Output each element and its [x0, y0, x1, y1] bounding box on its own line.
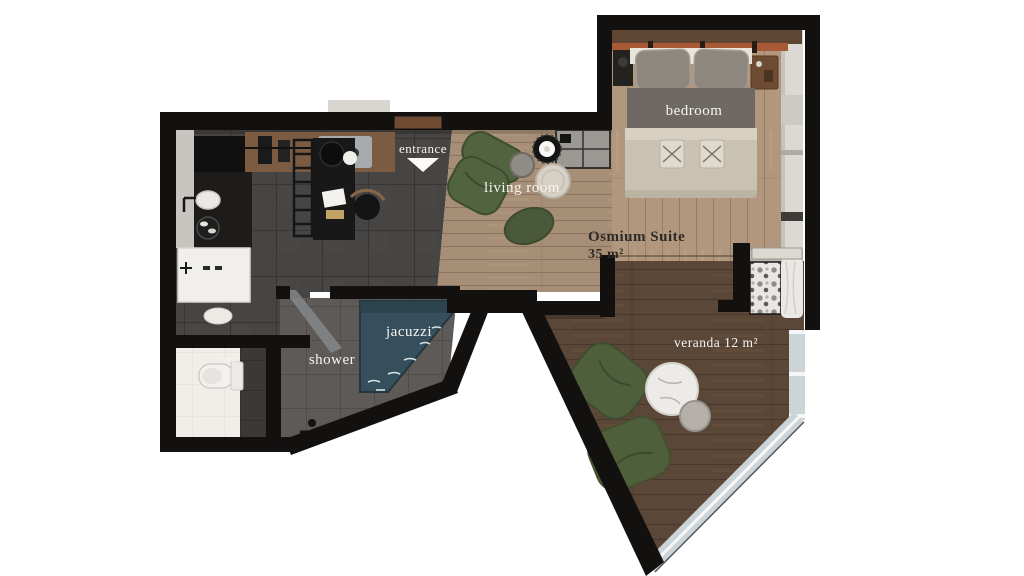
wc-floor-dark	[240, 348, 268, 437]
shower-head	[308, 419, 316, 427]
curtain	[781, 258, 803, 318]
decor-petal-2	[208, 229, 216, 234]
living-room-label: living room	[484, 180, 560, 196]
wc-area	[199, 362, 243, 390]
wall-kitchen-shower	[330, 286, 460, 299]
bed-blanket-fold	[625, 128, 757, 140]
side-table	[510, 153, 534, 177]
nightstand-book	[764, 70, 773, 82]
wall-kitchen-shower-stub	[276, 286, 290, 299]
veranda-door-threshold	[752, 248, 802, 259]
decor-basin	[197, 217, 219, 239]
shower-label: shower	[309, 352, 355, 368]
wall-veranda-jog	[600, 255, 615, 317]
entrance-label: entrance	[399, 141, 447, 156]
nightstand-cup	[756, 61, 762, 67]
bedroom-label: bedroom	[666, 103, 723, 119]
wall-door-stub-foot	[718, 300, 738, 312]
suite-area-label: 35 m²	[588, 247, 624, 262]
kitchen-counter-dark-top	[194, 136, 252, 172]
console-item	[560, 134, 571, 143]
desk-gold-tray	[326, 210, 344, 219]
suite-name-label: Osmium Suite	[588, 229, 685, 245]
floor-lamp	[533, 135, 561, 163]
desk-lamp-ball	[343, 151, 357, 165]
desk-chair	[354, 194, 380, 220]
window-frame-2	[789, 372, 805, 376]
counter-item-2	[278, 140, 290, 162]
wall-living-south	[447, 290, 537, 313]
jacuzzi-label: jacuzzi	[385, 324, 432, 340]
nightstand-left-item	[618, 57, 628, 67]
wall-bedroom-left	[597, 15, 612, 130]
veranda-label: veranda 12 m²	[674, 335, 758, 350]
wall-veranda-northwest	[535, 301, 605, 315]
wall-wc-shower	[266, 348, 281, 452]
wall-bedroom-top	[597, 15, 820, 30]
small-table	[680, 401, 710, 431]
headboard-shelf	[612, 28, 802, 44]
bed-blanket-edge	[625, 190, 757, 198]
wall-top-left-block	[160, 112, 600, 130]
floor-plan: entrance living room bedroom Osmium Suit…	[0, 0, 1024, 576]
window-frame-1	[789, 330, 805, 334]
wall-left	[160, 112, 176, 452]
counter-item-1	[258, 136, 272, 164]
pillow-left	[635, 49, 690, 91]
wall-wc-top	[160, 335, 310, 348]
floor-plan-svg: entrance living room bedroom Osmium Suit…	[0, 0, 1024, 576]
towel-roll	[204, 308, 232, 324]
vanity	[178, 248, 250, 302]
jacuzzi-edge-shade	[360, 301, 452, 313]
marble-wall-strip	[176, 130, 194, 248]
vanity-handle-2	[215, 266, 222, 270]
wall-right	[805, 15, 820, 330]
wc-label: wc	[222, 351, 238, 366]
vanity-handle-1	[203, 266, 210, 270]
entrance-door-leaf	[394, 116, 442, 129]
beam-bracket-3	[752, 41, 757, 53]
sink	[196, 191, 220, 209]
toilet-bowl	[202, 368, 222, 384]
wardrobe-dark-item	[781, 212, 803, 221]
toilet-tank	[231, 362, 243, 390]
exterior-ledge	[328, 100, 390, 113]
pillow-right	[693, 49, 748, 91]
decor-petal-1	[200, 222, 208, 227]
wardrobe-shelf	[781, 95, 803, 125]
desk-bowl	[320, 142, 344, 166]
wardrobe-rod	[781, 150, 803, 155]
pebble-decor	[750, 262, 781, 314]
